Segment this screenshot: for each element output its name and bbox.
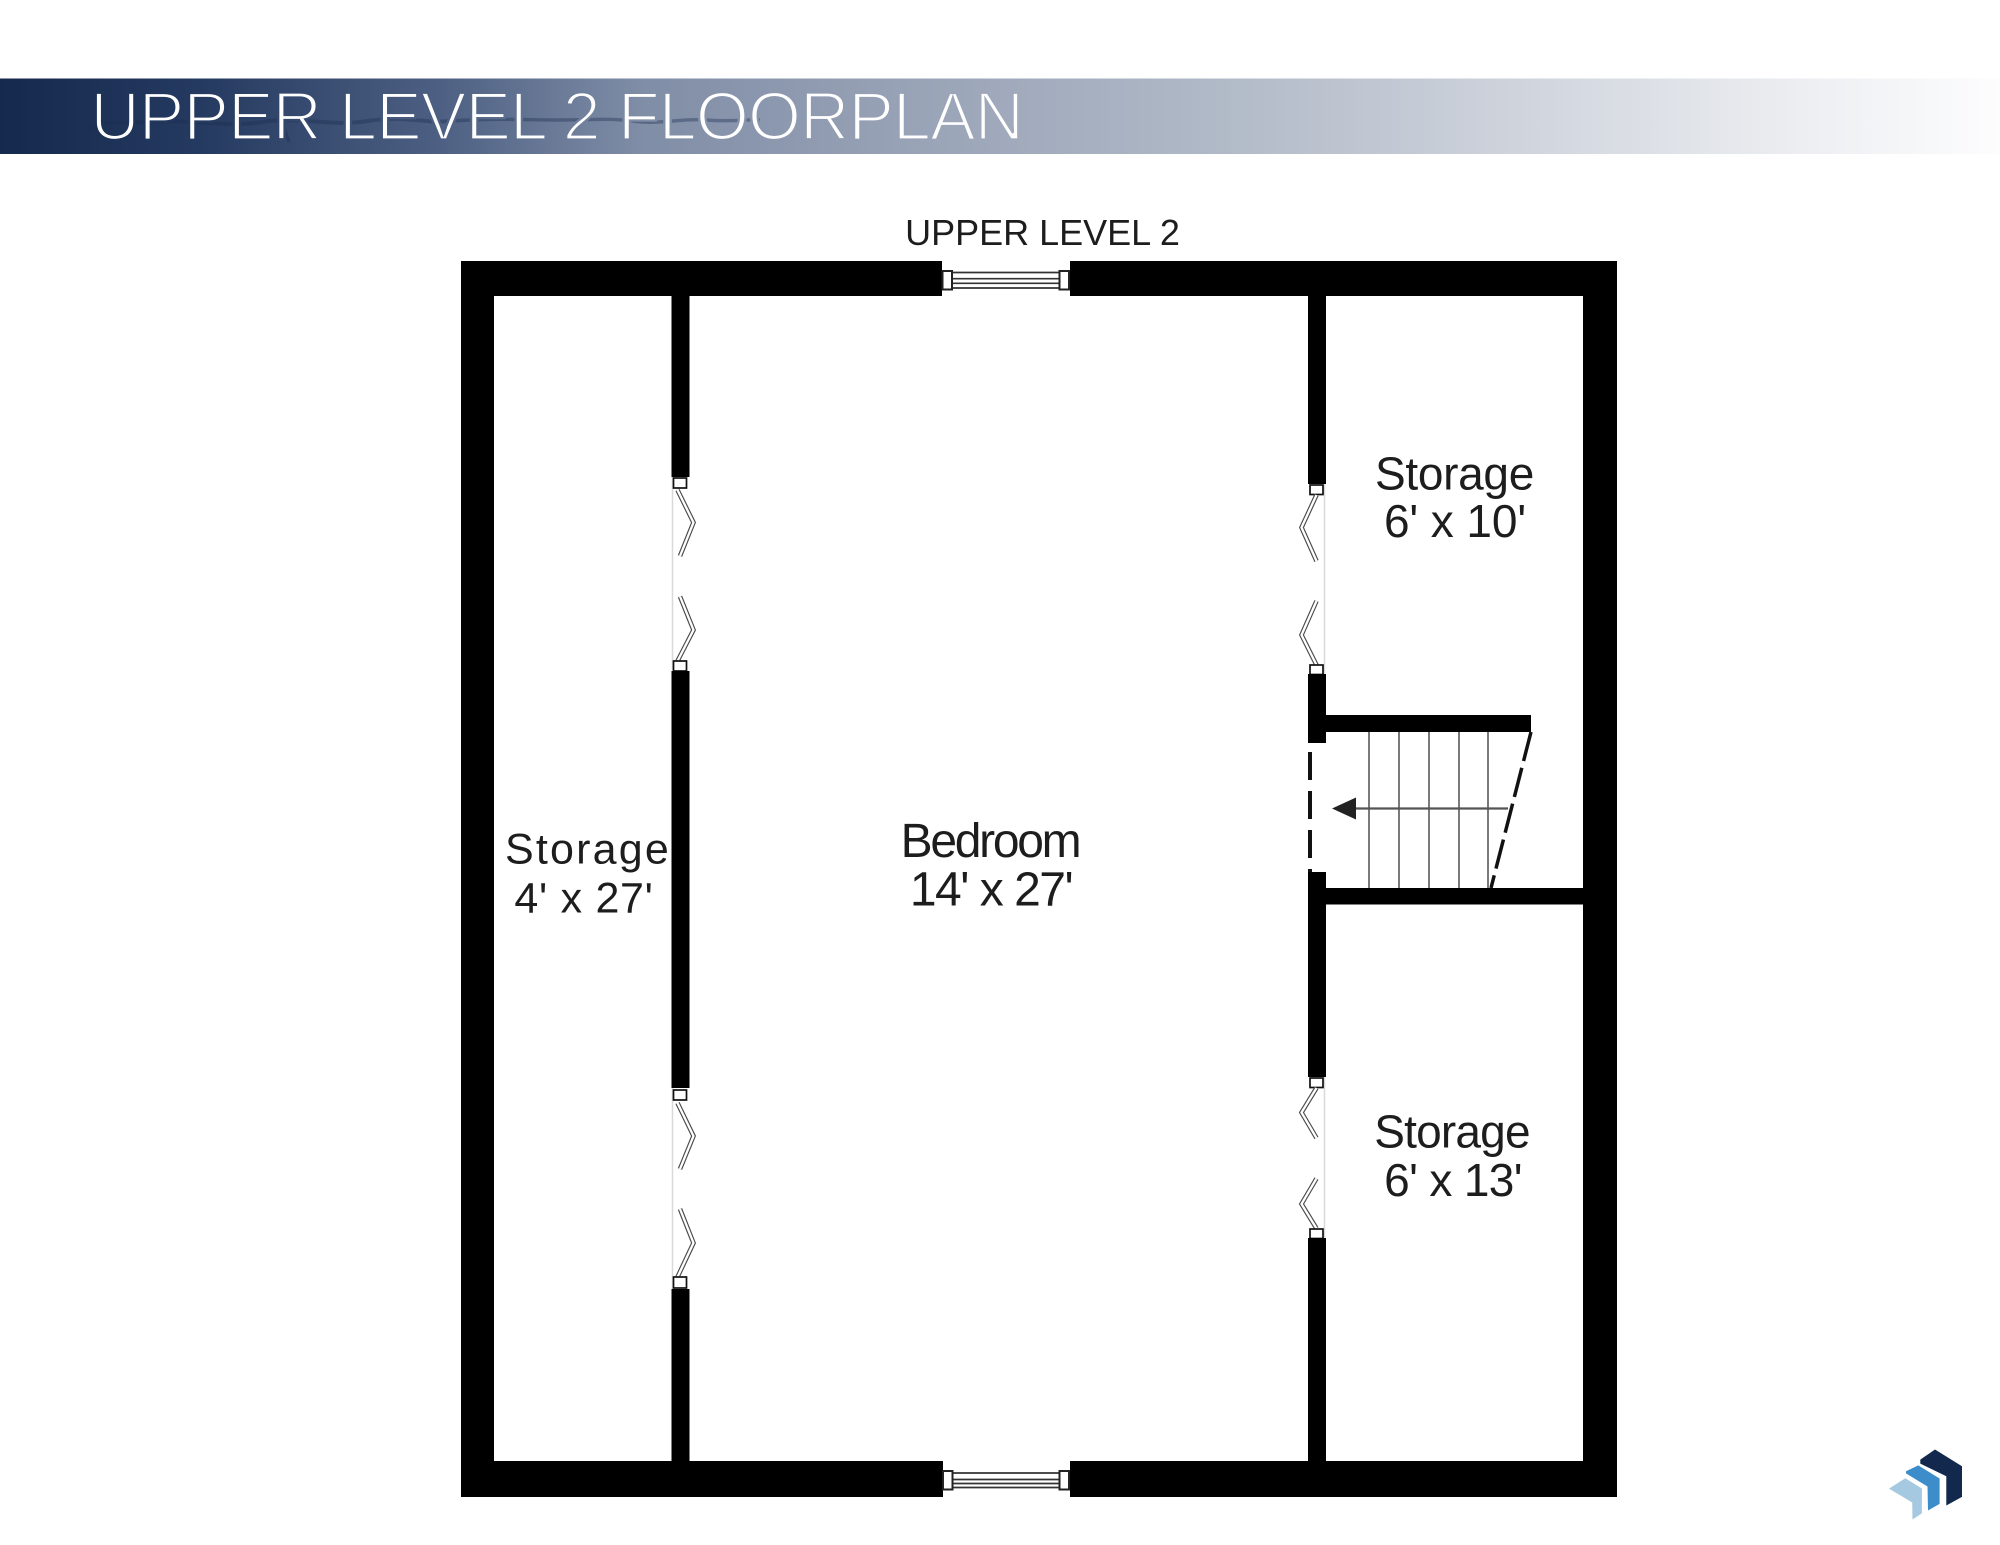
svg-text:6' x 10': 6' x 10' — [1384, 495, 1526, 547]
svg-text:Storage: Storage — [1375, 448, 1534, 500]
svg-text:Storage: Storage — [1374, 1106, 1530, 1158]
svg-text:Storage: Storage — [505, 826, 671, 874]
svg-text:UPPER LEVEL 2 FLOORPLAN: UPPER LEVEL 2 FLOORPLAN — [91, 79, 1024, 155]
svg-text:6' x 13': 6' x 13' — [1384, 1154, 1522, 1206]
svg-text:UPPER LEVEL 2: UPPER LEVEL 2 — [905, 212, 1180, 253]
svg-text:4' x 27': 4' x 27' — [514, 875, 653, 923]
svg-text:14' x 27': 14' x 27' — [910, 864, 1072, 917]
svg-text:Bedroom: Bedroom — [901, 815, 1080, 868]
